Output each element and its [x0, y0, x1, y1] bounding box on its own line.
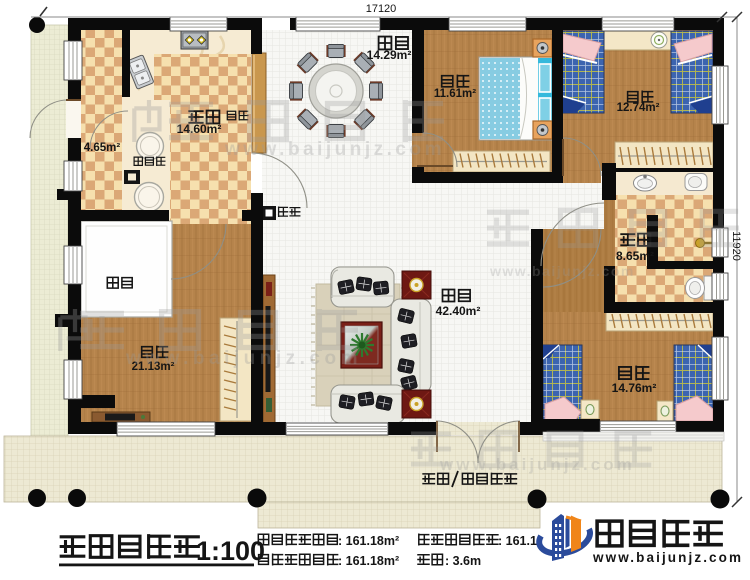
svg-text:www.baijunjz.com: www.baijunjz.com [224, 139, 445, 160]
svg-text:12.74m²: 12.74m² [617, 102, 660, 114]
svg-text:: 161.1: : 161.1 [498, 534, 537, 548]
svg-text:www.baijunjz.com: www.baijunjz.com [592, 550, 743, 565]
svg-text:: 161.18m²: : 161.18m² [338, 554, 399, 568]
svg-text:www.baijunjz.com: www.baijunjz.com [125, 348, 362, 369]
svg-text:14.29m²: 14.29m² [367, 48, 412, 62]
svg-text:: 3.6m: : 3.6m [445, 554, 481, 568]
svg-text:www.baijunjz.com: www.baijunjz.com [439, 455, 635, 474]
svg-text:1:100: 1:100 [196, 536, 265, 566]
svg-text:11.61m²: 11.61m² [434, 88, 476, 100]
svg-text:14.76m²: 14.76m² [612, 381, 657, 395]
svg-text:4.65m²: 4.65m² [84, 142, 121, 154]
svg-text:www.baijunjz.com: www.baijunjz.com [489, 263, 635, 279]
svg-text:14.60m²: 14.60m² [177, 122, 222, 136]
svg-text:17120: 17120 [366, 3, 397, 15]
svg-text:: 161.18m²: : 161.18m² [338, 534, 399, 548]
svg-text:8.65m²: 8.65m² [616, 249, 654, 263]
svg-text:42.40m²: 42.40m² [436, 304, 481, 318]
